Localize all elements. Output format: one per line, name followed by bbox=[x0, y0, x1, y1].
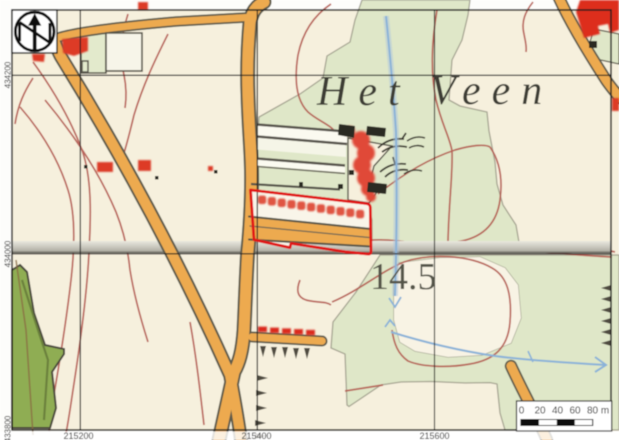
svg-text:215400: 215400 bbox=[241, 431, 271, 440]
svg-text:40: 40 bbox=[552, 406, 564, 417]
svg-text:20: 20 bbox=[534, 406, 546, 417]
svg-text:215600: 215600 bbox=[419, 431, 449, 440]
svg-text:433800: 433800 bbox=[4, 415, 13, 440]
svg-text:0: 0 bbox=[519, 406, 525, 417]
svg-text:Het: Het bbox=[316, 69, 411, 115]
svg-text:215200: 215200 bbox=[63, 431, 93, 440]
svg-text:80: 80 bbox=[587, 406, 599, 417]
svg-text:60: 60 bbox=[569, 406, 581, 417]
svg-text:m: m bbox=[601, 406, 609, 417]
svg-text:434000: 434000 bbox=[4, 240, 13, 267]
svg-text:434200: 434200 bbox=[4, 61, 13, 88]
svg-text:Veen: Veen bbox=[430, 68, 553, 114]
svg-text:14.5: 14.5 bbox=[370, 256, 437, 298]
